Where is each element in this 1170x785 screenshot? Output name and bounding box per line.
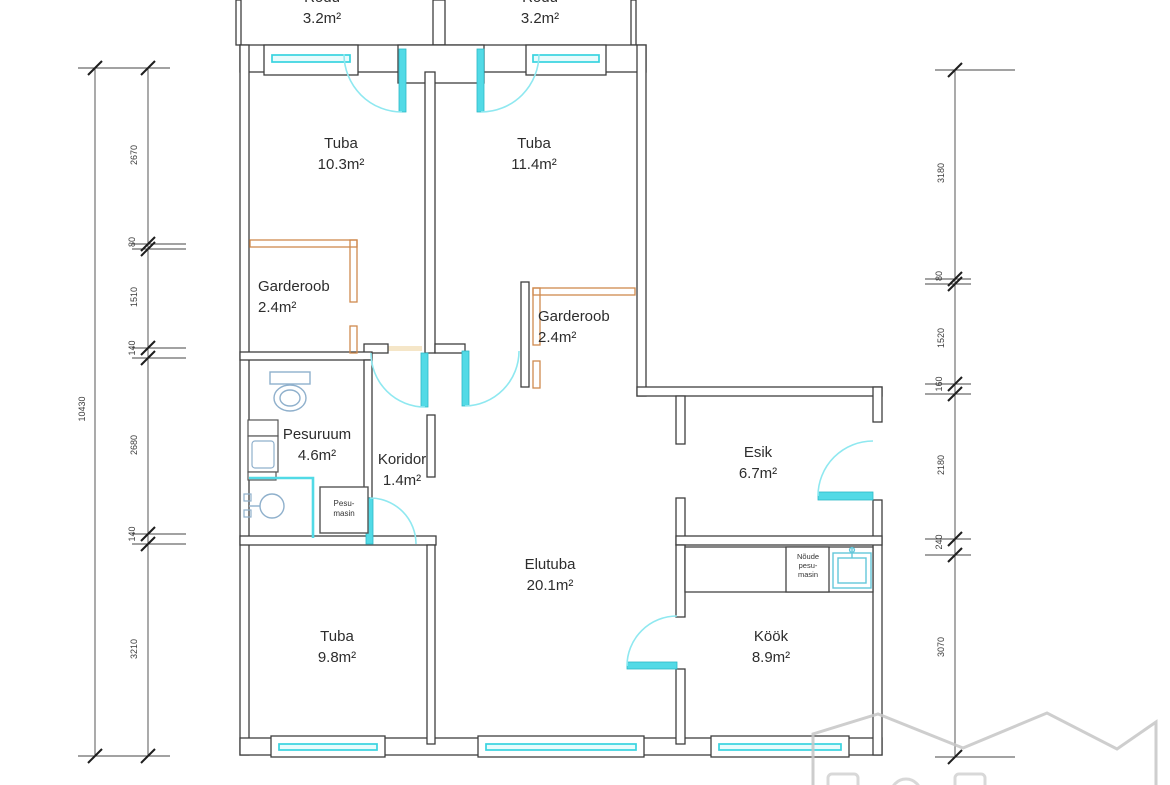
room-area: 4.6m² <box>283 445 351 466</box>
kitchen-sink-icon <box>833 547 871 588</box>
dim-left-1510: 1510 <box>129 277 139 317</box>
room-label-garderoob-left: Garderoob 2.4m² <box>258 276 330 318</box>
room-area: 8.9m² <box>752 647 790 668</box>
room-label-rodu-right: Rõdu 3.2m² <box>521 0 559 29</box>
toilet-icon <box>270 372 310 411</box>
plan-svg <box>0 0 1170 785</box>
room-label-kook: Köök 8.9m² <box>752 626 790 668</box>
entrance-door <box>818 441 873 500</box>
wall-kook-left-lower <box>676 669 685 744</box>
exterior-wall-esik-top <box>637 387 882 396</box>
balcony-wall <box>631 0 636 45</box>
wall-tuba-sw-top <box>240 536 436 545</box>
room-label-garderoob-right: Garderoob 2.4m² <box>538 306 610 348</box>
wall-esik-bottom <box>676 536 882 545</box>
room-name: Köök <box>752 626 790 647</box>
room-label-rodu-left: Rõdu 3.2m² <box>303 0 341 29</box>
dim-left-140b: 140 <box>127 514 137 554</box>
dim-left-140a: 140 <box>127 328 137 368</box>
room-label-tuba-ne: Tuba 11.4m² <box>511 133 557 175</box>
dim-left-3210: 3210 <box>129 629 139 669</box>
room-area: 3.2m² <box>521 8 559 29</box>
dim-right-240: 240 <box>934 522 944 562</box>
room-name: Rõdu <box>303 0 341 8</box>
dim-right-2180: 2180 <box>936 445 946 485</box>
wall-esik-left-upper <box>676 396 685 444</box>
room-area: 2.4m² <box>258 297 330 318</box>
dim-left-2680: 2680 <box>129 425 139 465</box>
room-area: 3.2m² <box>303 8 341 29</box>
wall-between-bedrooms <box>425 72 435 353</box>
room-name: Tuba <box>511 133 557 154</box>
door-tuba-ne <box>462 351 519 406</box>
balcony-wall <box>236 0 241 45</box>
window-elutuba <box>478 736 644 757</box>
dim-left-2670: 2670 <box>129 135 139 175</box>
wall-pesuruum-right <box>364 360 372 498</box>
dishwasher-label: Nõude pesu- masin <box>787 552 829 579</box>
floorplan-canvas: Rõdu 3.2m² Rõdu 3.2m² Tuba 10.3m² Tuba 1… <box>0 0 1170 785</box>
room-area: 9.8m² <box>318 647 356 668</box>
door-tuba-nw <box>371 353 428 407</box>
dim-right-1520: 1520 <box>936 318 946 358</box>
dim-left-80: 80 <box>127 222 137 262</box>
door-kook <box>627 616 677 669</box>
room-name: Garderoob <box>258 276 330 297</box>
shower-icon <box>244 478 313 538</box>
dim-right-3180: 3180 <box>936 153 946 193</box>
room-area: 1.4m² <box>378 470 426 491</box>
wall-kook-left-upper <box>676 545 685 617</box>
exterior-wall-right <box>873 387 882 422</box>
dim-right-3070: 3070 <box>936 627 946 667</box>
room-area: 11.4m² <box>511 154 557 175</box>
washing-machine-label: Pesu- masin <box>320 499 368 519</box>
wall-tuba-ne-bottom <box>435 344 465 353</box>
dim-right-160: 160 <box>934 364 944 404</box>
wall-pier-center <box>398 45 484 83</box>
room-name: Pesuruum <box>283 424 351 445</box>
wall-koridor-right <box>427 415 435 477</box>
room-label-pesuruum: Pesuruum 4.6m² <box>283 424 351 466</box>
washbasin-icon <box>248 420 278 480</box>
balcony-divider-wall <box>433 0 445 45</box>
dim-right-80: 80 <box>934 256 944 296</box>
dim-left-total: 10430 <box>77 389 87 429</box>
room-area: 20.1m² <box>525 575 576 596</box>
room-name: Tuba <box>318 626 356 647</box>
exterior-wall-right-upper <box>637 45 646 396</box>
room-label-esik: Esik 6.7m² <box>739 442 777 484</box>
room-label-koridor: Koridor 1.4m² <box>378 449 426 491</box>
wall-finish-strips <box>388 346 786 543</box>
room-label-tuba-nw: Tuba 10.3m² <box>318 133 365 175</box>
room-name: Rõdu <box>521 0 559 8</box>
room-area: 10.3m² <box>318 154 365 175</box>
room-name: Tuba <box>318 133 365 154</box>
room-label-tuba-sw: Tuba 9.8m² <box>318 626 356 668</box>
window-tuba-sw <box>271 736 385 757</box>
exterior-wall-left <box>240 45 249 755</box>
room-name: Elutuba <box>525 554 576 575</box>
room-name: Koridor <box>378 449 426 470</box>
room-name: Esik <box>739 442 777 463</box>
kitchen-fixtures <box>685 547 873 592</box>
wall-garderoob-right <box>521 282 529 387</box>
room-name: Garderoob <box>538 306 610 327</box>
wall-elutuba-left <box>427 545 435 744</box>
room-area: 2.4m² <box>538 327 610 348</box>
window-kook <box>711 736 849 757</box>
room-label-elutuba: Elutuba 20.1m² <box>525 554 576 596</box>
room-area: 6.7m² <box>739 463 777 484</box>
